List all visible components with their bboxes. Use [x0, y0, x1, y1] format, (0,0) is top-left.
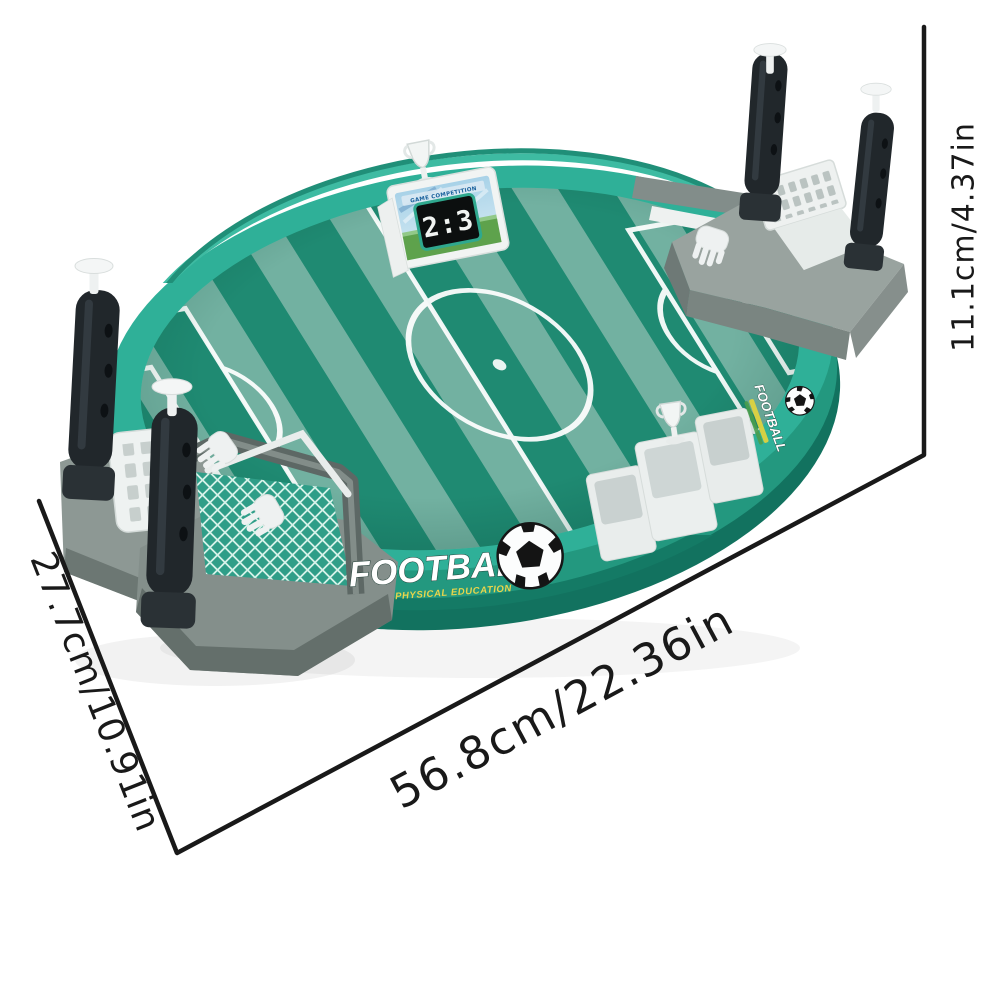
pull-pin: [75, 259, 113, 295]
tabletop-football-illustration: GAME COMPETITION 2:3: [0, 0, 1000, 1000]
goal-net: [196, 472, 352, 586]
product-photo: GAME COMPETITION 2:3: [0, 0, 1000, 1000]
dimension-label-height: 11.1cm/4.37in: [947, 122, 982, 352]
pull-pin: [861, 83, 891, 111]
handle-grip: [843, 111, 898, 272]
